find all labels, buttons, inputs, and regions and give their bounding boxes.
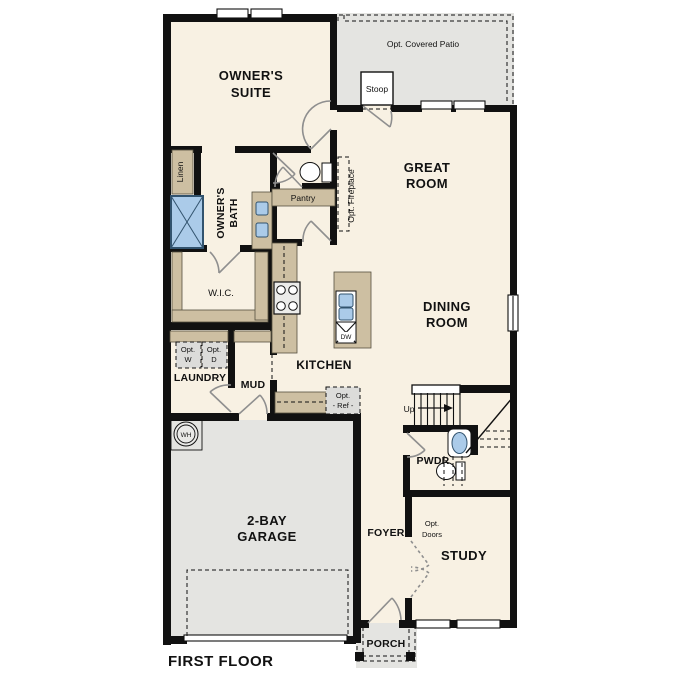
opt-doors-label: Doors [422,530,442,539]
wall [403,490,517,497]
opt-dryer-label: Opt. [207,345,221,354]
wall [167,322,274,330]
window [416,620,450,628]
opt-ref-label: Opt. [336,391,350,400]
opt-dryer-label: D [211,355,217,364]
dishwasher-label: DW [341,334,353,341]
page-title: FIRST FLOOR [168,653,274,670]
porch-label: PORCH [367,638,406,650]
window [421,101,452,109]
owners-suite-label: SUITE [231,85,271,100]
garage-label: GARAGE [237,529,296,544]
wall [510,105,517,297]
stairs-up-label: Up [404,404,415,414]
garage-label: 2-BAY [247,513,287,528]
wall [330,14,337,110]
wall [337,105,363,112]
wall [360,620,369,628]
linen-label: Linen [175,161,185,182]
wall [403,425,410,433]
study-label: STUDY [441,548,487,563]
floor-plan-svg: DW WH [0,0,687,687]
vanity-sink [256,223,268,237]
floor-plan-page: DW WH [0,0,687,687]
pantry-label: Pantry [291,193,316,203]
dining-room-label: ROOM [426,315,468,330]
dining-room-label: DINING [423,299,471,314]
opt-covered-patio-label: Opt. Covered Patio [387,39,460,49]
window [457,620,500,628]
window [217,9,248,18]
great-room-label: ROOM [406,176,448,191]
owners-bath-label: BATH [228,198,240,227]
opt-doors-label: Opt. [425,519,439,528]
porch-post [406,652,415,661]
porch-post [355,652,364,661]
kitchen-label: KITCHEN [296,358,351,372]
mud-bench [234,331,271,342]
bath-vanity [252,192,272,249]
wall [163,14,337,22]
wall [458,385,510,393]
window [251,9,282,18]
garage-door [184,635,347,641]
foyer-label: FOYER [367,527,404,539]
laundry-label: LAUNDRY [174,372,226,384]
island-sink [336,291,356,322]
wall [405,497,412,537]
water-heater-label: WH [181,432,192,439]
pwdr-sink [448,429,471,457]
wall [163,636,187,644]
wic-shelf [172,310,268,322]
vanity-sink [256,202,268,215]
mud-label: MUD [241,379,266,391]
wall [510,330,517,628]
shower [171,196,203,248]
stoop: Stoop [361,72,393,105]
wall [353,413,361,643]
dishwasher: DW [336,322,356,343]
opt-washer-label: Opt. [181,345,195,354]
opt-washer-label: W [184,355,192,364]
wic-shelf [255,252,268,320]
stair-landing [412,385,460,394]
wall [403,455,410,491]
opt-fireplace-label: Opt. Fireplace [346,169,356,223]
opt-ref-label: - Ref - [333,401,354,410]
wall [267,413,361,421]
wall [194,150,201,195]
owners-bath-label: OWNER'S [215,187,227,238]
owners-suite-label: OWNER'S [219,68,283,83]
kitchen-range [274,282,300,314]
window [454,101,485,109]
wall [391,105,422,112]
pwdr-label: PWDR [417,455,450,467]
toilet-owners-wc [300,163,332,183]
wic-label: W.I.C. [208,288,234,299]
great-room-label: GREAT [404,160,451,175]
wall [499,620,517,628]
stoop-label: Stoop [366,84,388,94]
wall [399,620,408,628]
laundry-shelf [170,331,228,342]
